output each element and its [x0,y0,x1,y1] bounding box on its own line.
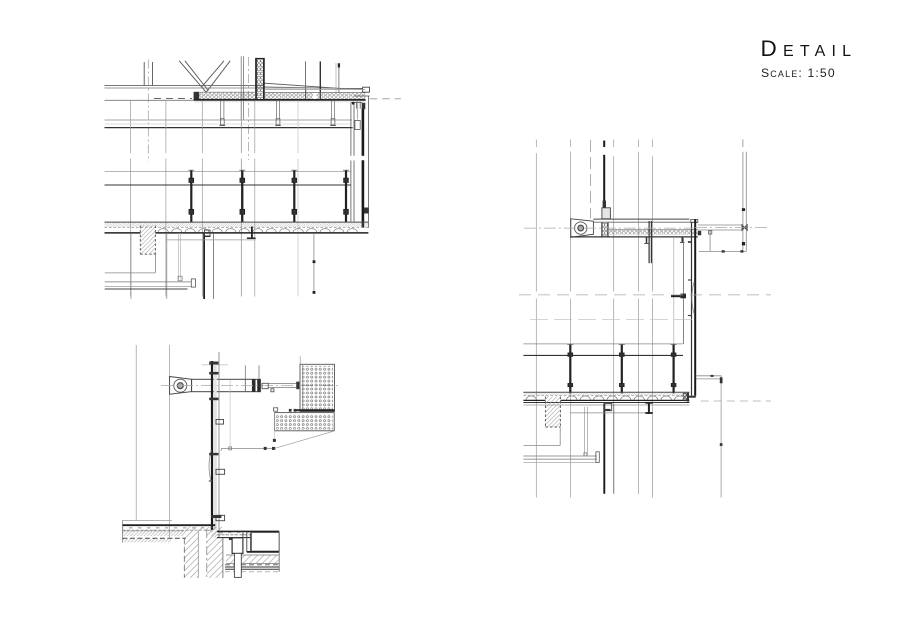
svg-text:Detail: Detail [761,36,858,61]
svg-text:Scale: 1:50: Scale: 1:50 [761,66,836,80]
